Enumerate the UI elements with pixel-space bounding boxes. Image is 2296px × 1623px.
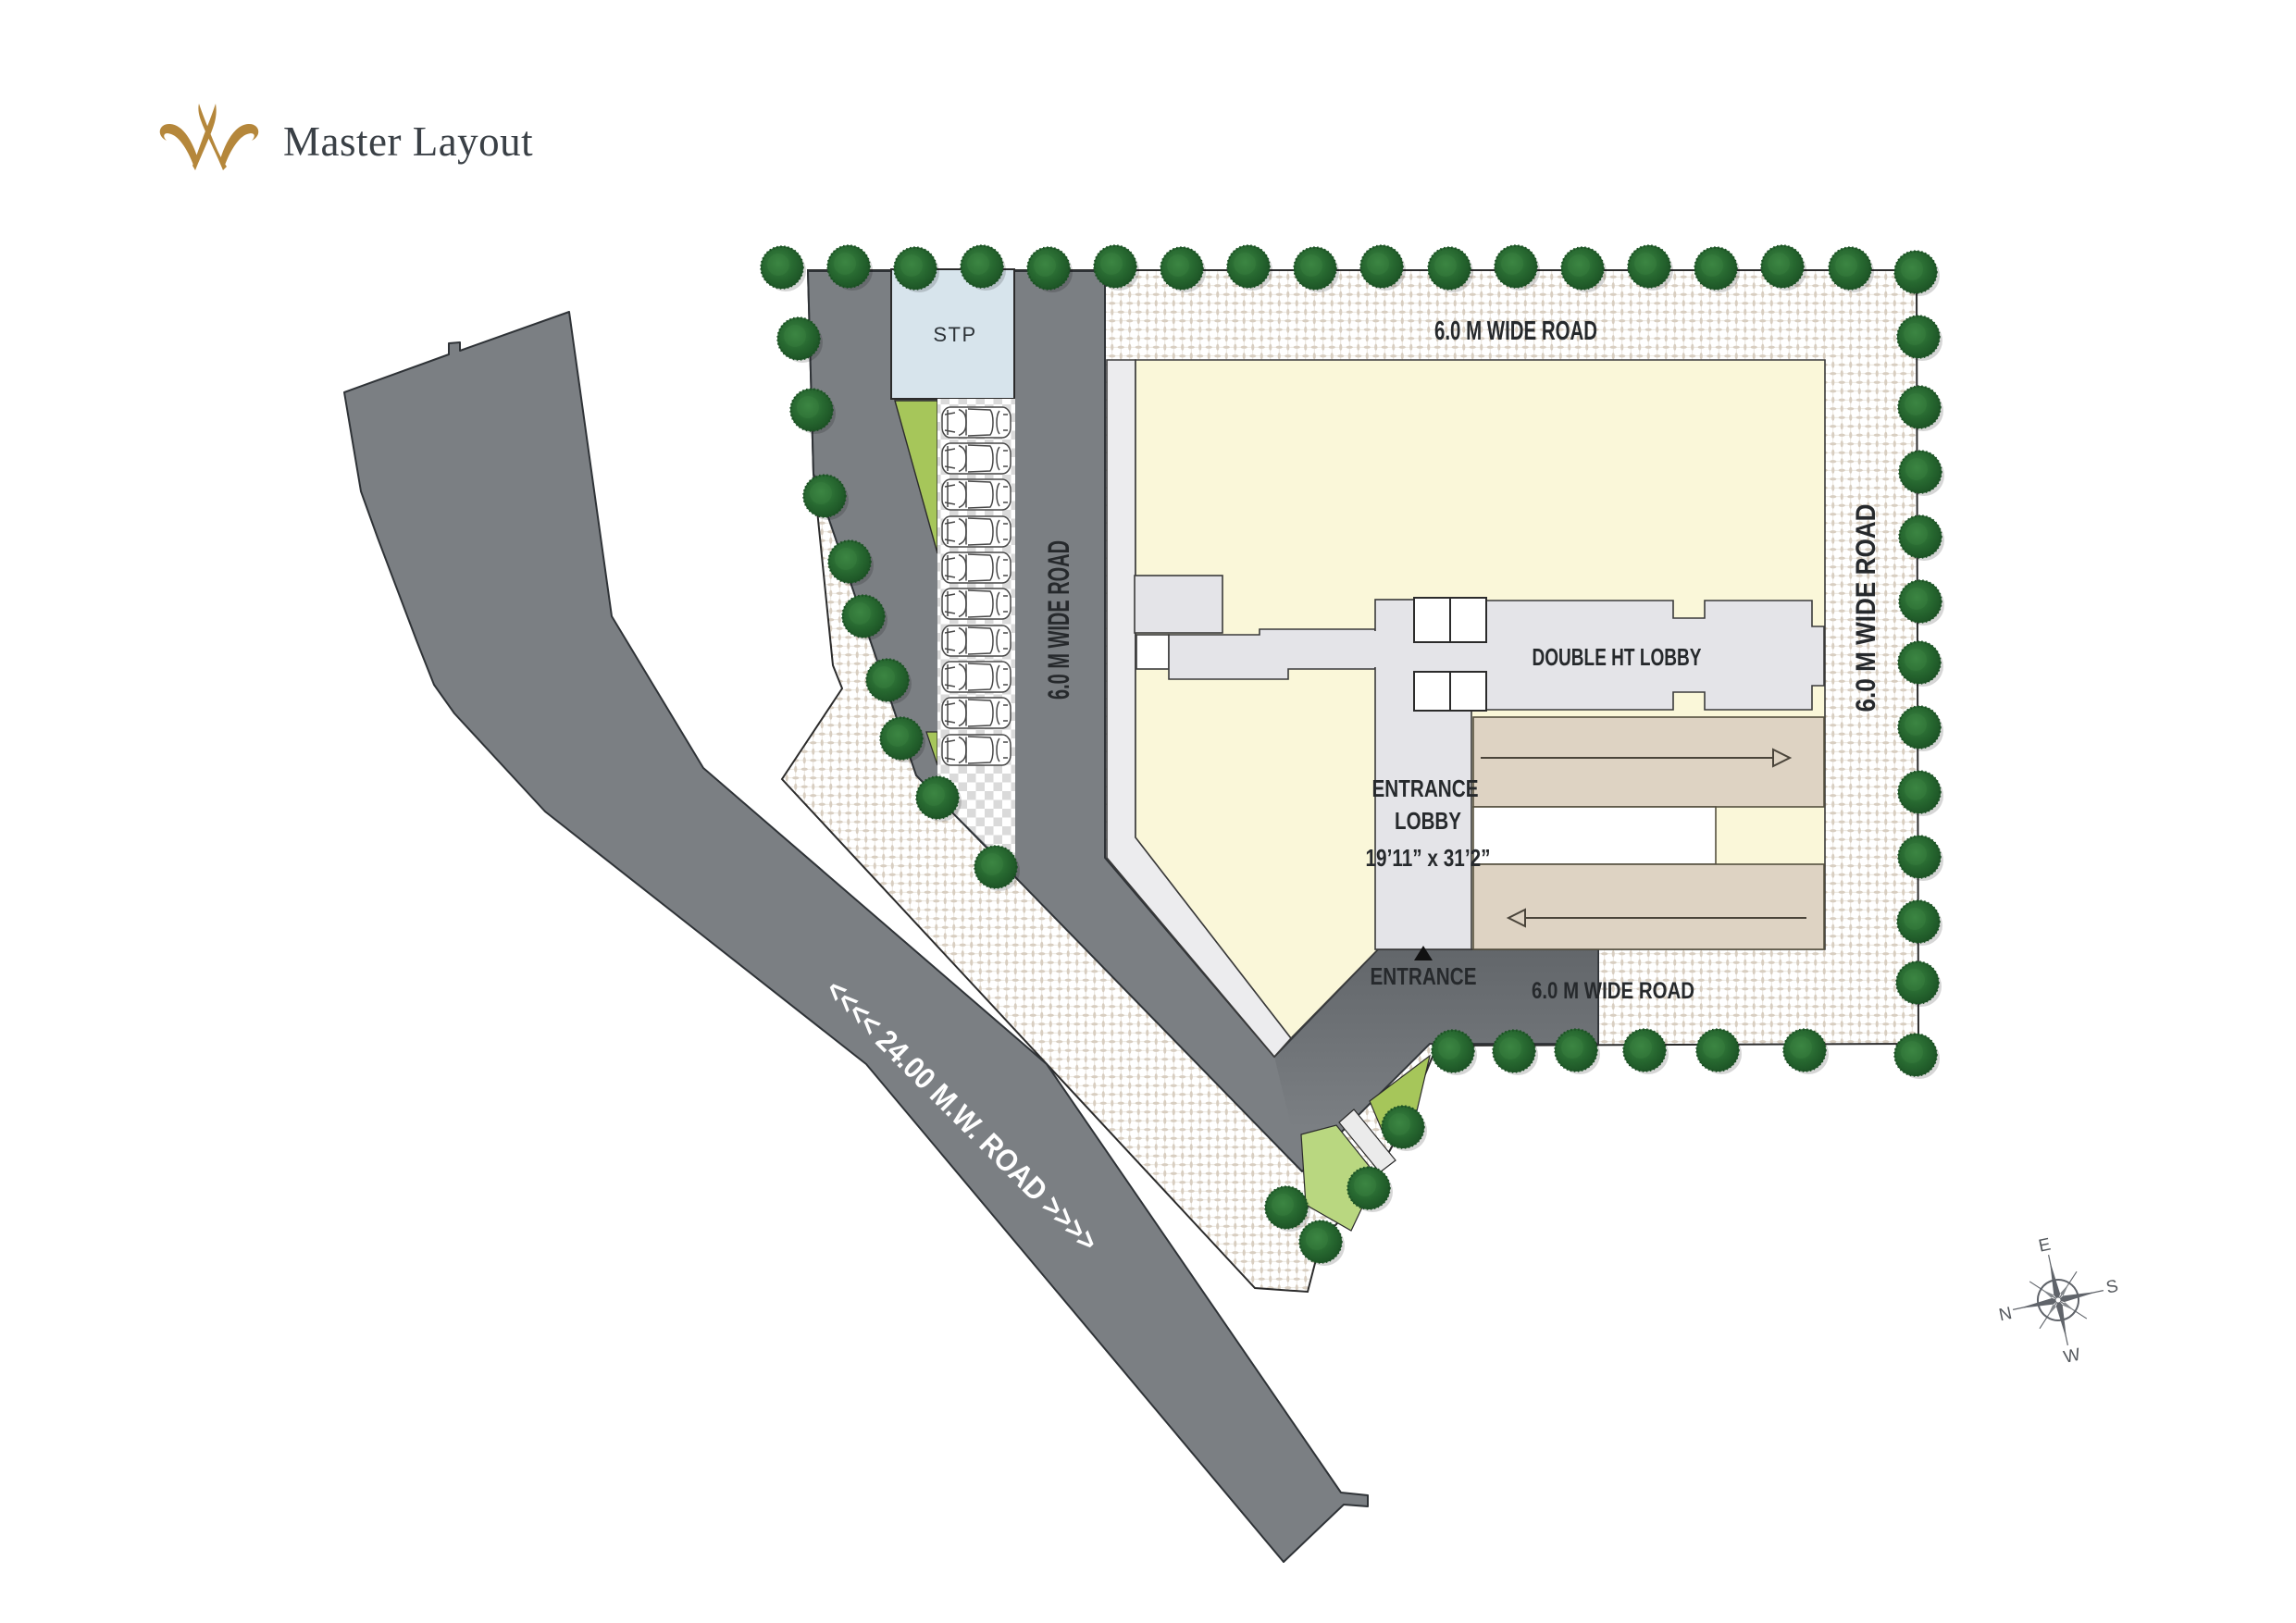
svg-text:LOBBY: LOBBY <box>1395 807 1461 835</box>
svg-text:6.0 M WIDE ROAD: 6.0 M WIDE ROAD <box>1532 978 1694 1004</box>
svg-text:6.0 M WIDE ROAD: 6.0 M WIDE ROAD <box>1042 540 1075 700</box>
svg-text:6.0 M WIDE ROAD: 6.0 M WIDE ROAD <box>1434 316 1597 346</box>
svg-text:ENTRANCE: ENTRANCE <box>1372 774 1479 802</box>
svg-text:19’11” x 31’2”: 19’11” x 31’2” <box>1366 844 1491 872</box>
svg-text:STP: STP <box>933 323 976 346</box>
svg-text:6.0 M WIDE ROAD: 6.0 M WIDE ROAD <box>1851 504 1881 712</box>
svg-text:DOUBLE HT LOBBY: DOUBLE HT LOBBY <box>1533 643 1702 671</box>
svg-text:ENTRANCE: ENTRANCE <box>1371 962 1477 990</box>
svg-text:Master Layout: Master Layout <box>283 118 533 165</box>
